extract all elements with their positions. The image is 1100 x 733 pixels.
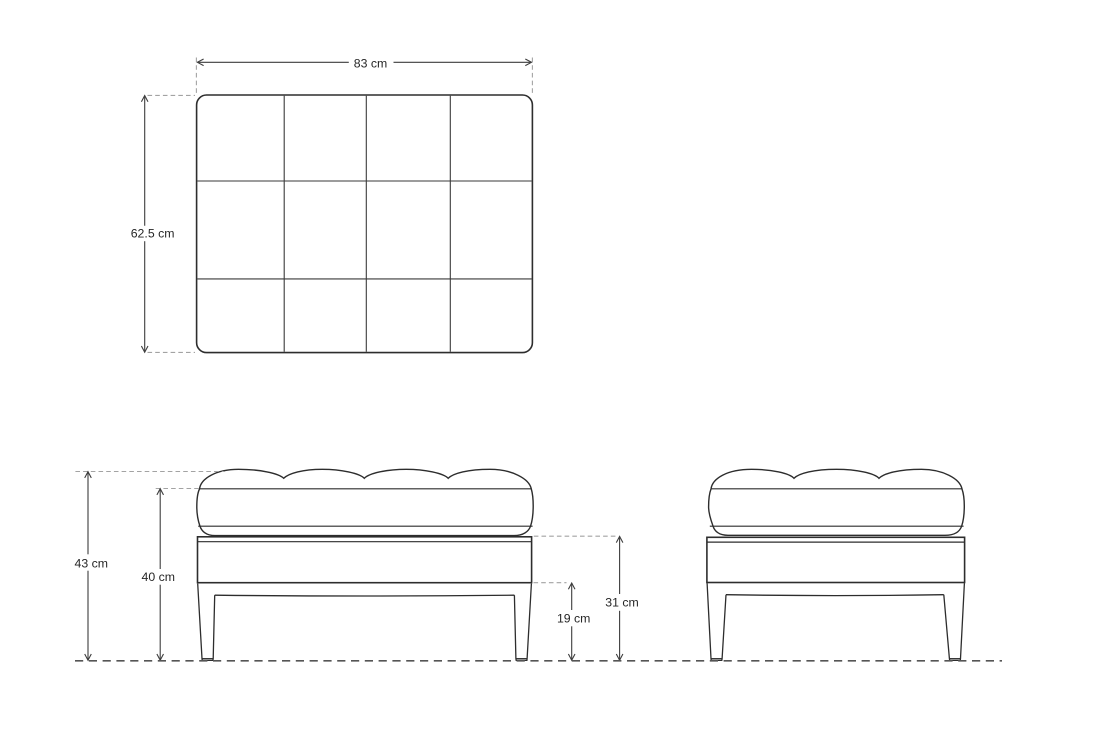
svg-text:43 cm: 43 cm (75, 556, 109, 570)
svg-text:19 cm: 19 cm (557, 612, 591, 626)
svg-text:31 cm: 31 cm (605, 596, 639, 610)
svg-text:40 cm: 40 cm (142, 570, 176, 584)
svg-text:83 cm: 83 cm (354, 57, 388, 71)
svg-text:62.5 cm: 62.5 cm (131, 227, 175, 241)
